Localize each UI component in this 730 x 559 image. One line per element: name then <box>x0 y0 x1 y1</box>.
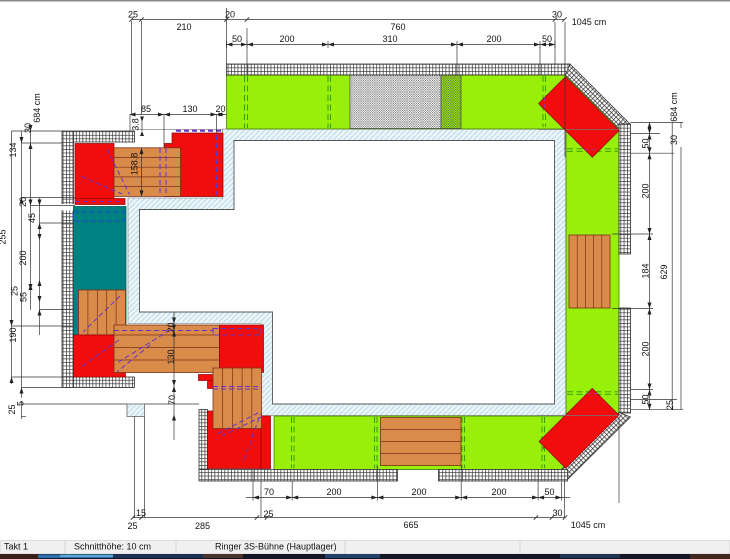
svg-text:70: 70 <box>264 487 274 497</box>
svg-text:310: 310 <box>382 34 397 44</box>
svg-text:285: 285 <box>195 521 210 531</box>
svg-text:50: 50 <box>544 487 554 497</box>
svg-text:85: 85 <box>141 104 151 114</box>
svg-text:30: 30 <box>669 135 679 145</box>
svg-text:20: 20 <box>225 10 235 20</box>
svg-text:50: 50 <box>232 34 242 44</box>
svg-text:25: 25 <box>263 509 273 519</box>
svg-text:30: 30 <box>552 508 562 518</box>
svg-text:760: 760 <box>390 22 405 32</box>
svg-text:684 cm: 684 cm <box>669 92 679 122</box>
svg-text:200: 200 <box>411 487 426 497</box>
svg-text:25: 25 <box>127 521 137 531</box>
svg-text:629: 629 <box>659 264 669 279</box>
svg-text:184: 184 <box>641 263 651 278</box>
svg-text:210: 210 <box>176 22 191 32</box>
svg-text:200: 200 <box>491 487 506 497</box>
svg-text:200: 200 <box>326 487 341 497</box>
svg-text:20: 20 <box>215 104 225 114</box>
svg-text:200: 200 <box>641 183 651 198</box>
svg-text:55: 55 <box>19 292 29 302</box>
svg-text:200: 200 <box>486 34 501 44</box>
svg-text:200: 200 <box>641 341 651 356</box>
svg-text:Takt 1: Takt 1 <box>4 542 28 552</box>
svg-text:50: 50 <box>641 394 651 404</box>
svg-text:665: 665 <box>403 520 418 530</box>
svg-text:158.8: 158.8 <box>130 153 140 176</box>
svg-text:Schnitthöhe: 10 cm: Schnitthöhe: 10 cm <box>74 542 151 552</box>
svg-text:255: 255 <box>0 229 8 244</box>
svg-text:200: 200 <box>279 34 294 44</box>
svg-text:25: 25 <box>665 400 675 410</box>
svg-text:50: 50 <box>641 138 651 148</box>
svg-text:45: 45 <box>27 213 37 223</box>
svg-text:134: 134 <box>8 142 18 157</box>
svg-text:50: 50 <box>542 34 552 44</box>
svg-text:Ringer 3S-Bühne (Hauptlager): Ringer 3S-Bühne (Hauptlager) <box>215 542 337 552</box>
svg-text:200: 200 <box>18 250 28 265</box>
svg-text:130: 130 <box>182 104 197 114</box>
svg-text:70: 70 <box>167 395 177 405</box>
svg-text:1045 cm: 1045 cm <box>572 17 607 27</box>
svg-text:3.8: 3.8 <box>131 118 141 131</box>
svg-text:15: 15 <box>136 508 146 518</box>
svg-text:130: 130 <box>166 349 176 364</box>
svg-text:5: 5 <box>16 401 26 406</box>
svg-text:190: 190 <box>8 327 18 342</box>
svg-text:1045 cm: 1045 cm <box>571 520 606 530</box>
svg-text:684 cm: 684 cm <box>32 93 42 123</box>
